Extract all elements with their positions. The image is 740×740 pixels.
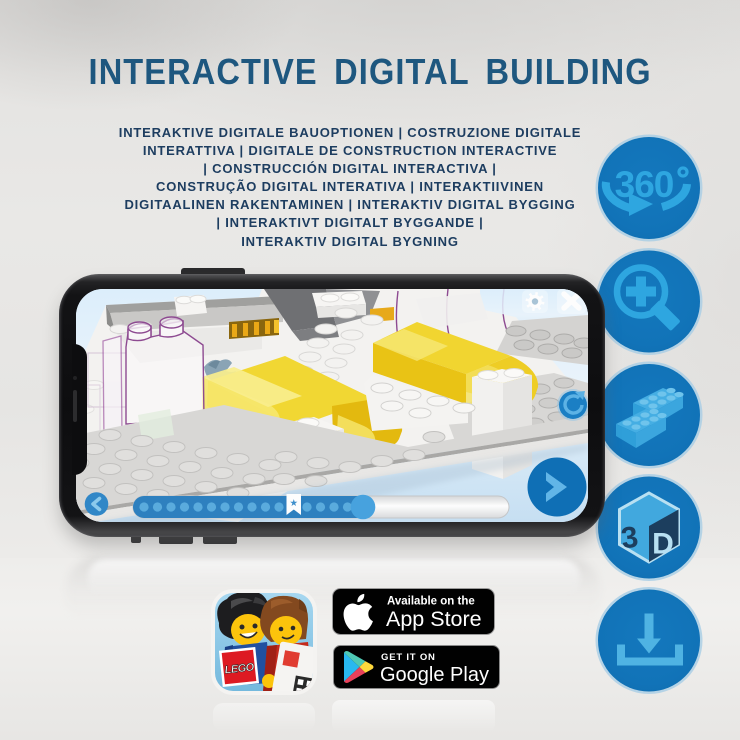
svg-text:D: D bbox=[652, 528, 674, 561]
svg-text:App Store: App Store bbox=[386, 607, 482, 631]
svg-text:Available on the: Available on the bbox=[387, 596, 475, 608]
svg-text:★: ★ bbox=[290, 498, 299, 509]
svg-text:GET IT ON: GET IT ON bbox=[381, 652, 436, 663]
svg-text:Google Play: Google Play bbox=[380, 664, 489, 686]
svg-text:360: 360 bbox=[615, 164, 674, 205]
